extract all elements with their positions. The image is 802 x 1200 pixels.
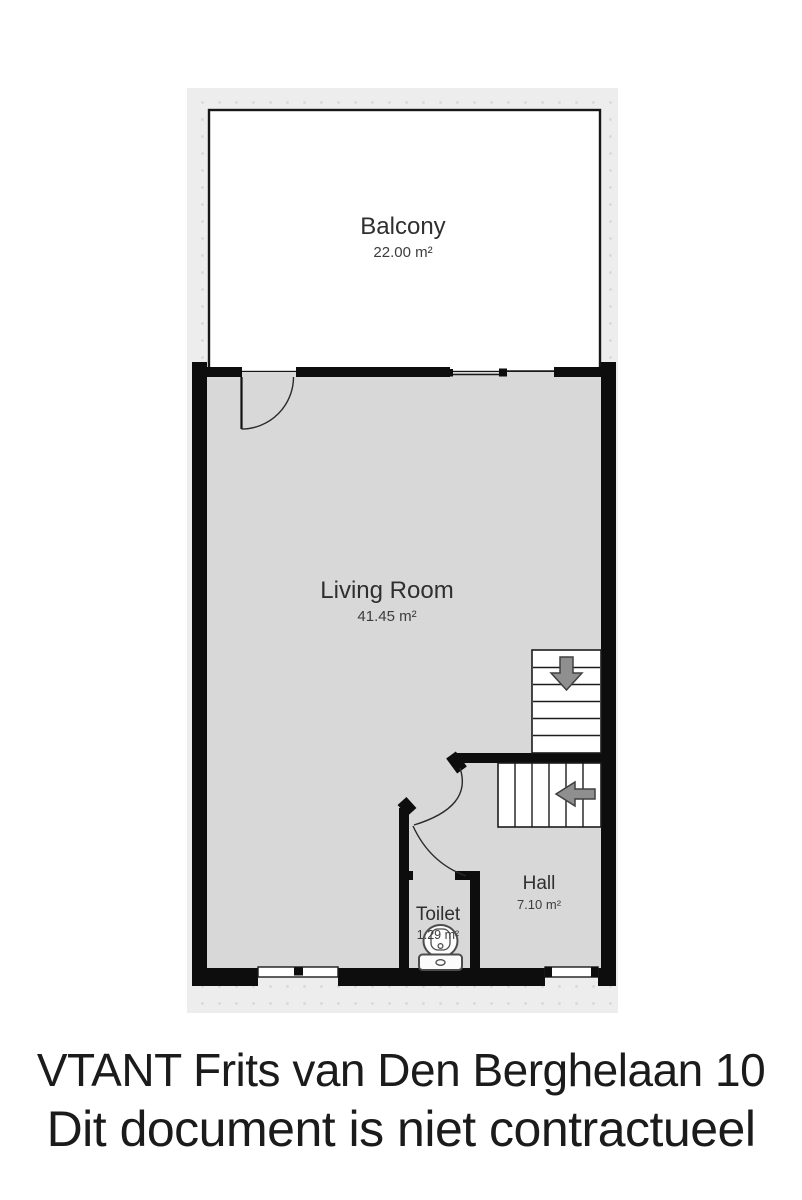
window-bottom-right-jamb2 [591, 967, 598, 977]
floorplan-drawing [0, 0, 802, 1040]
wall-balcony-seg1 [192, 367, 242, 377]
wall-bottom-seg1 [192, 968, 258, 986]
window-bottom-right [545, 967, 598, 977]
room-name: Toilet [388, 903, 488, 927]
room-area: 7.10 m² [489, 896, 589, 913]
sliding-door-stop2 [499, 369, 507, 377]
staircase-lower [498, 763, 601, 827]
wall-hall-top [454, 753, 601, 763]
wall-bottom-seg3 [598, 968, 616, 986]
room-area: 41.45 m² [287, 606, 487, 628]
floorplan-page: Balcony 22.00 m² Living Room 41.45 m² Ha… [0, 0, 802, 1200]
wall-toilet-top-left [399, 871, 413, 880]
wall-right [601, 362, 616, 986]
room-label-living-room: Living Room 41.45 m² [287, 576, 487, 628]
room-label-hall: Hall 7.10 m² [489, 872, 589, 913]
sliding-door-stop1 [446, 369, 453, 377]
room-name: Living Room [287, 576, 487, 606]
disclaimer-text: Dit document is niet contractueel [0, 1100, 802, 1158]
footer-caption: VTANT Frits van Den Berghelaan 10 Dit do… [0, 1040, 802, 1158]
wall-left [192, 362, 207, 986]
room-name: Balcony [303, 212, 503, 242]
wall-balcony-seg3 [554, 367, 616, 377]
window-bottom-right-jamb1 [545, 967, 552, 977]
wall-hall-left [399, 808, 409, 970]
room-area: 22.00 m² [303, 242, 503, 264]
room-name: Hall [489, 872, 589, 896]
address-text: VTANT Frits van Den Berghelaan 10 [0, 1040, 802, 1100]
room-area: 1.29 m² [388, 927, 488, 943]
toilet-tank [419, 955, 462, 971]
room-label-toilet: Toilet 1.29 m² [388, 903, 488, 943]
window-bottom-left-mullion [294, 968, 303, 976]
wall-jamb-toilet [402, 801, 412, 812]
room-label-balcony: Balcony 22.00 m² [303, 212, 503, 264]
staircase-upper [532, 650, 601, 753]
wall-balcony-seg2 [296, 367, 450, 377]
